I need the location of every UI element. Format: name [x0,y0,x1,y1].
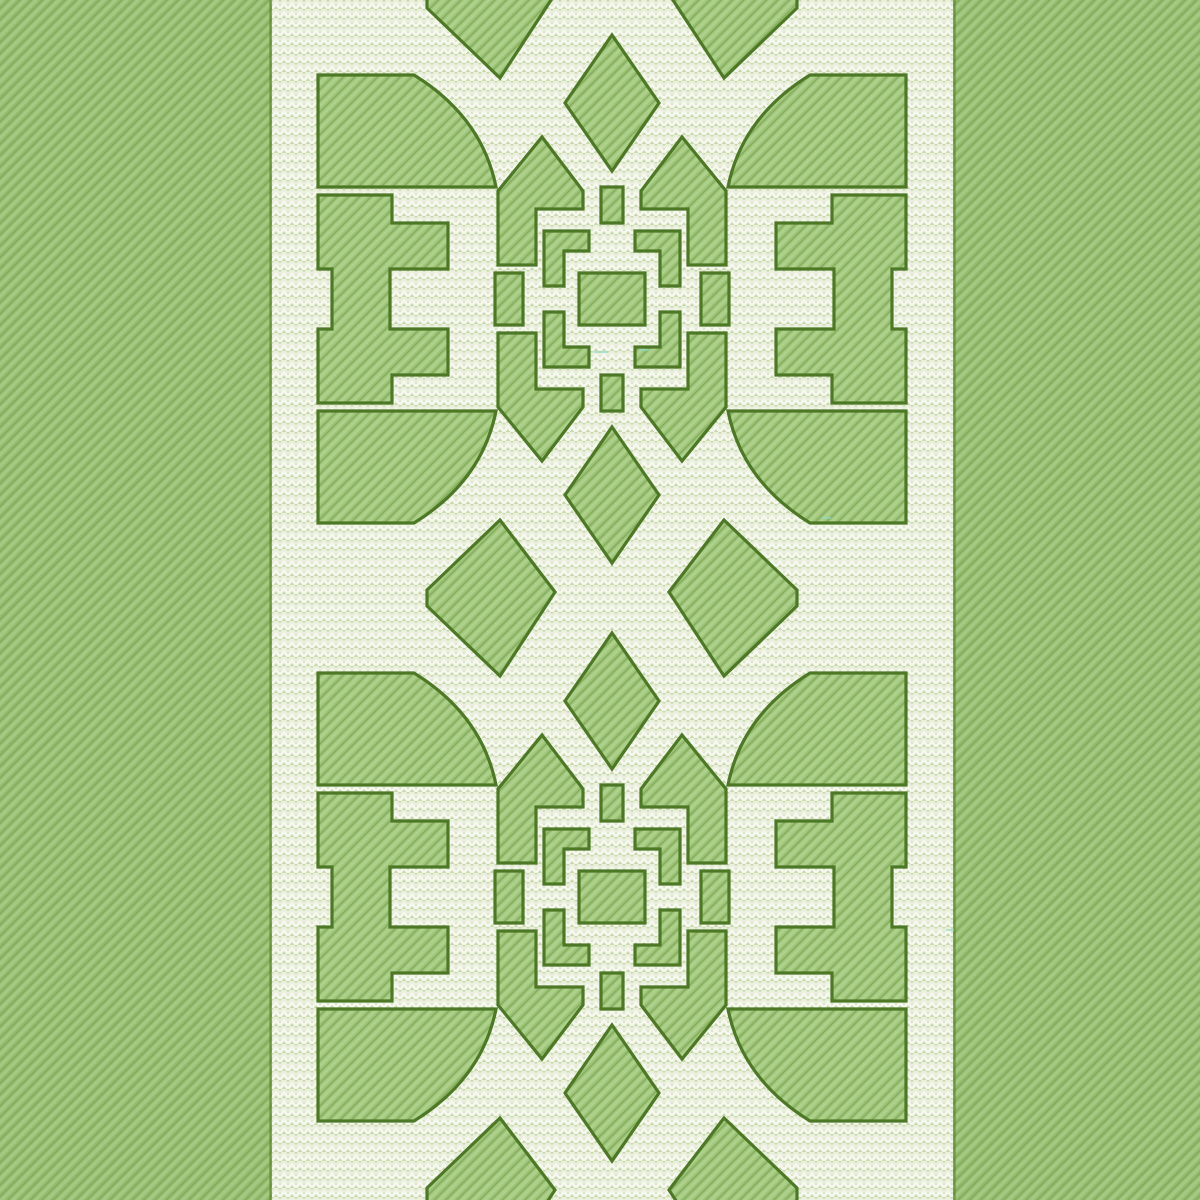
fabric-swatch [0,0,1200,1200]
embroidered-fret-tape [271,0,955,1200]
fabric-swatch-photo [0,0,1200,1200]
